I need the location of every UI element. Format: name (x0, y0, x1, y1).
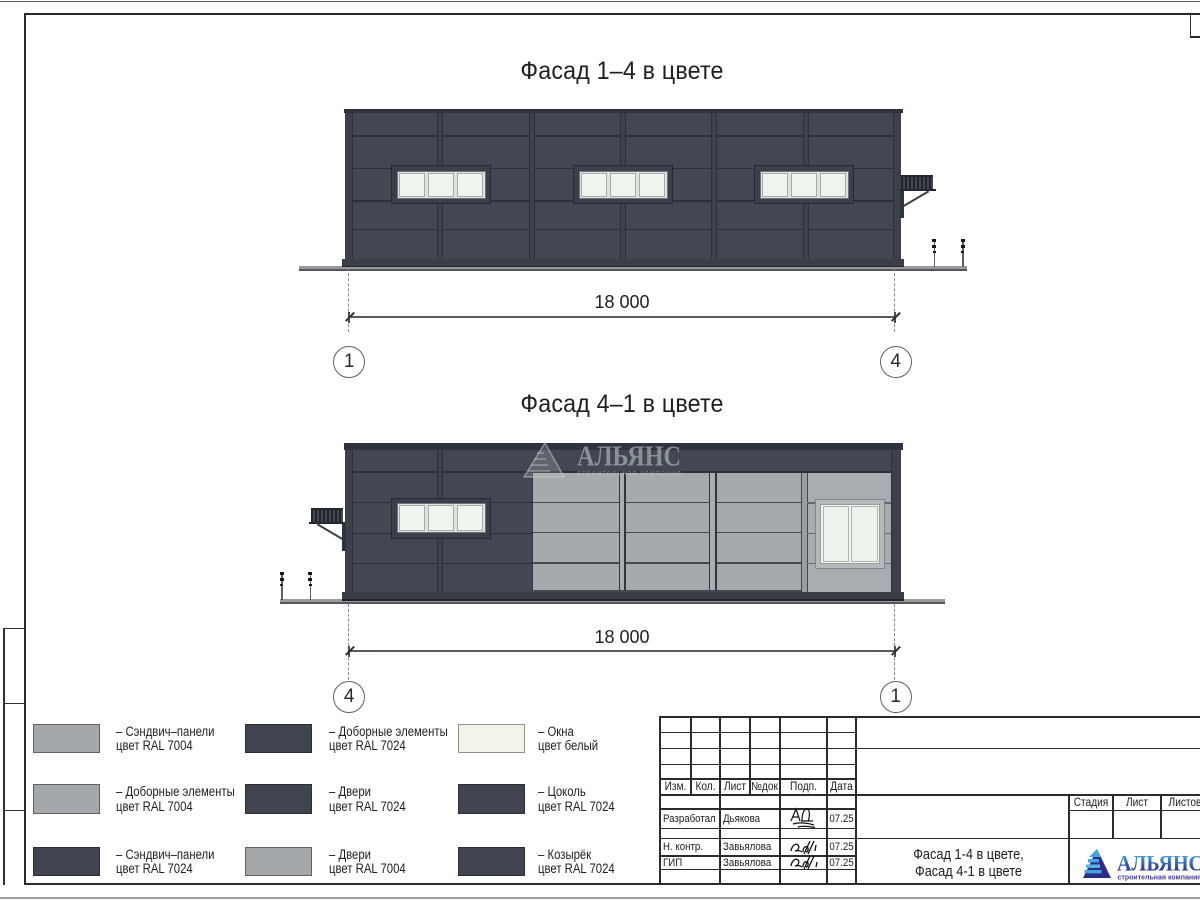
svg-text:строительная компания: строительная компания (1118, 873, 1200, 882)
svg-text:строительная компания: строительная компания (577, 469, 681, 478)
